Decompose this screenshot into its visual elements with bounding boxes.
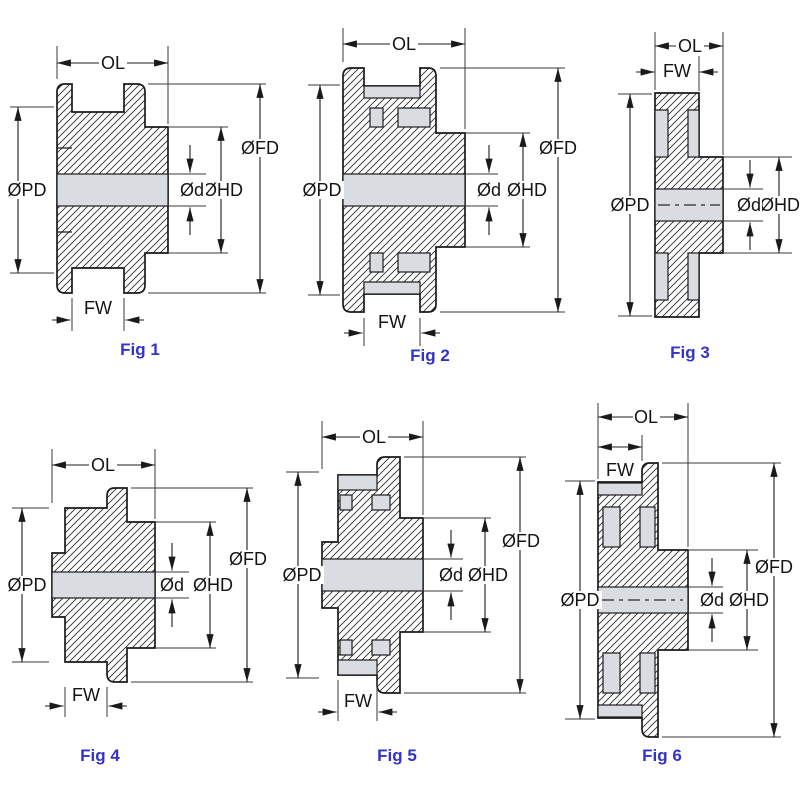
fig5-caption: Fig 5 <box>377 746 417 765</box>
figure-4-drawing: OL ØPD ØFD ØHD Ød FW Fig 4 <box>0 395 270 800</box>
fig5-label-ol: OL <box>362 427 386 447</box>
fig1-pulley-cross-section <box>57 84 168 293</box>
fig5-label-fw: FW <box>344 691 372 711</box>
fig6-label-hd: ØHD <box>729 590 769 610</box>
fig6-label-fd: ØFD <box>755 557 793 577</box>
fig3-dimension-d: Ød <box>723 160 763 250</box>
fig6-label-ol: OL <box>634 407 658 427</box>
fig6-rim-bottom-right <box>640 653 655 693</box>
fig4-bore <box>52 572 155 598</box>
fig4-dimension-pd: ØPD <box>5 508 49 662</box>
fig1-label-pd: ØPD <box>7 180 46 200</box>
fig3-dimension-pd: ØPD <box>608 94 652 316</box>
figure-6-drawing: OL FW ØPD ØFD ØHD Ød Fig 6 <box>555 395 800 800</box>
fig6-label-fw: FW <box>606 460 634 480</box>
fig5-belt-land-top <box>338 475 377 490</box>
fig2-caption: Fig 2 <box>410 346 450 365</box>
fig4-dimension-fw: FW <box>45 685 127 717</box>
fig2-recess-top-left <box>370 108 383 127</box>
fig4-label-ol: OL <box>91 455 115 475</box>
fig6-rim-top-left <box>603 507 620 547</box>
fig3-rim-bottom-right <box>688 253 699 300</box>
fig1-label-hd: ØHD <box>203 180 243 200</box>
fig5-pulley-cross-section <box>322 457 423 693</box>
fig5-dimension-hd: ØHD <box>423 518 510 632</box>
fig5-label-fd: ØFD <box>502 531 540 551</box>
fig2-belt-land-top <box>364 86 420 98</box>
fig3-label-hd: ØHD <box>760 195 800 215</box>
fig1-caption: Fig 1 <box>120 340 160 359</box>
pulley-figure-sheet: OL ØPD ØFD ØHD Ød FW Fig 1 <box>0 0 800 800</box>
fig3-label-pd: ØPD <box>610 195 649 215</box>
fig2-pulley-cross-section <box>343 68 465 312</box>
fig6-caption: Fig 6 <box>642 746 682 765</box>
fig5-recess-top-left <box>340 495 352 510</box>
figure-3-drawing: OL FW ØPD ØHD Ød Fig 3 <box>580 0 800 375</box>
fig1-dimension-pd: ØPD <box>5 107 54 273</box>
fig6-pulley-cross-section <box>598 463 688 737</box>
fig3-label-d: Ød <box>737 195 761 215</box>
fig1-label-fd: ØFD <box>241 138 279 158</box>
fig6-belt-land-bottom <box>598 705 642 717</box>
fig2-recess-top-right <box>398 108 430 127</box>
fig6-dimension-d: Ød <box>688 558 726 642</box>
fig1-label-ol: OL <box>101 53 125 73</box>
fig6-rim-top-right <box>640 507 655 547</box>
fig6-label-pd: ØPD <box>560 590 599 610</box>
fig6-label-d: Ød <box>700 590 724 610</box>
fig2-bore <box>343 174 465 206</box>
fig4-caption: Fig 4 <box>80 746 120 765</box>
fig2-label-pd: ØPD <box>302 180 341 200</box>
fig3-dimension-fw: FW <box>636 56 718 91</box>
fig5-label-hd: ØHD <box>468 565 508 585</box>
fig3-rim-bottom-left <box>655 253 668 300</box>
fig1-dimension-d: Ød <box>168 145 206 235</box>
fig3-pulley-cross-section <box>655 93 723 317</box>
fig5-belt-land-bottom <box>338 660 377 675</box>
fig3-label-ol: OL <box>678 36 702 56</box>
fig1-dimension-fw: FW <box>52 298 144 331</box>
fig5-recess-bottom-right <box>372 640 390 655</box>
fig1-label-d: Ød <box>180 180 204 200</box>
fig5-bore <box>322 559 423 591</box>
fig2-label-d: Ød <box>477 180 501 200</box>
fig5-dimension-pd: ØPD <box>280 472 324 678</box>
fig1-bore <box>57 174 168 206</box>
fig6-rim-bottom-left <box>603 653 620 693</box>
fig5-label-pd: ØPD <box>282 565 321 585</box>
fig3-label-fw: FW <box>663 61 691 81</box>
fig4-pulley-cross-section <box>52 488 155 682</box>
fig2-label-fd: ØFD <box>539 138 577 158</box>
fig2-belt-land-bottom <box>364 282 420 294</box>
fig4-label-fw: FW <box>72 685 100 705</box>
fig3-rim-top-right <box>688 110 699 157</box>
fig4-label-pd: ØPD <box>7 575 46 595</box>
fig2-label-hd: ØHD <box>507 180 547 200</box>
figure-2-drawing: OL ØPD ØFD ØHD Ød FW Fig 2 <box>280 0 580 375</box>
fig6-belt-land-top <box>598 483 642 495</box>
figure-5-drawing: OL ØPD ØFD ØHD Ød FW Fig 5 <box>270 395 555 800</box>
fig6-dimension-pd: ØPD <box>558 481 602 719</box>
fig2-label-ol: OL <box>392 34 416 54</box>
fig2-dimension-d: Ød <box>465 145 503 235</box>
figure-1-drawing: OL ØPD ØFD ØHD Ød FW Fig 1 <box>0 0 280 375</box>
fig1-label-fw: FW <box>84 298 112 318</box>
fig2-label-fw: FW <box>378 312 406 332</box>
fig5-recess-top-right <box>372 495 390 510</box>
fig2-recess-bottom-left <box>370 253 383 272</box>
fig2-dimension-fw: FW <box>344 312 440 346</box>
fig3-rim-top-left <box>655 110 668 157</box>
fig6-dimension-fw: FW <box>598 435 642 480</box>
fig4-label-hd: ØHD <box>193 575 233 595</box>
fig4-label-fd: ØFD <box>229 549 267 569</box>
fig4-dimension-d: Ød <box>155 543 189 627</box>
fig2-recess-bottom-right <box>398 253 430 272</box>
fig5-label-d: Ød <box>439 565 463 585</box>
fig5-dimension-d: Ød <box>423 530 465 620</box>
fig4-label-d: Ød <box>160 575 184 595</box>
fig2-dimension-pd: ØPD <box>300 85 344 295</box>
fig5-recess-bottom-left <box>340 640 352 655</box>
fig3-caption: Fig 3 <box>670 343 710 362</box>
